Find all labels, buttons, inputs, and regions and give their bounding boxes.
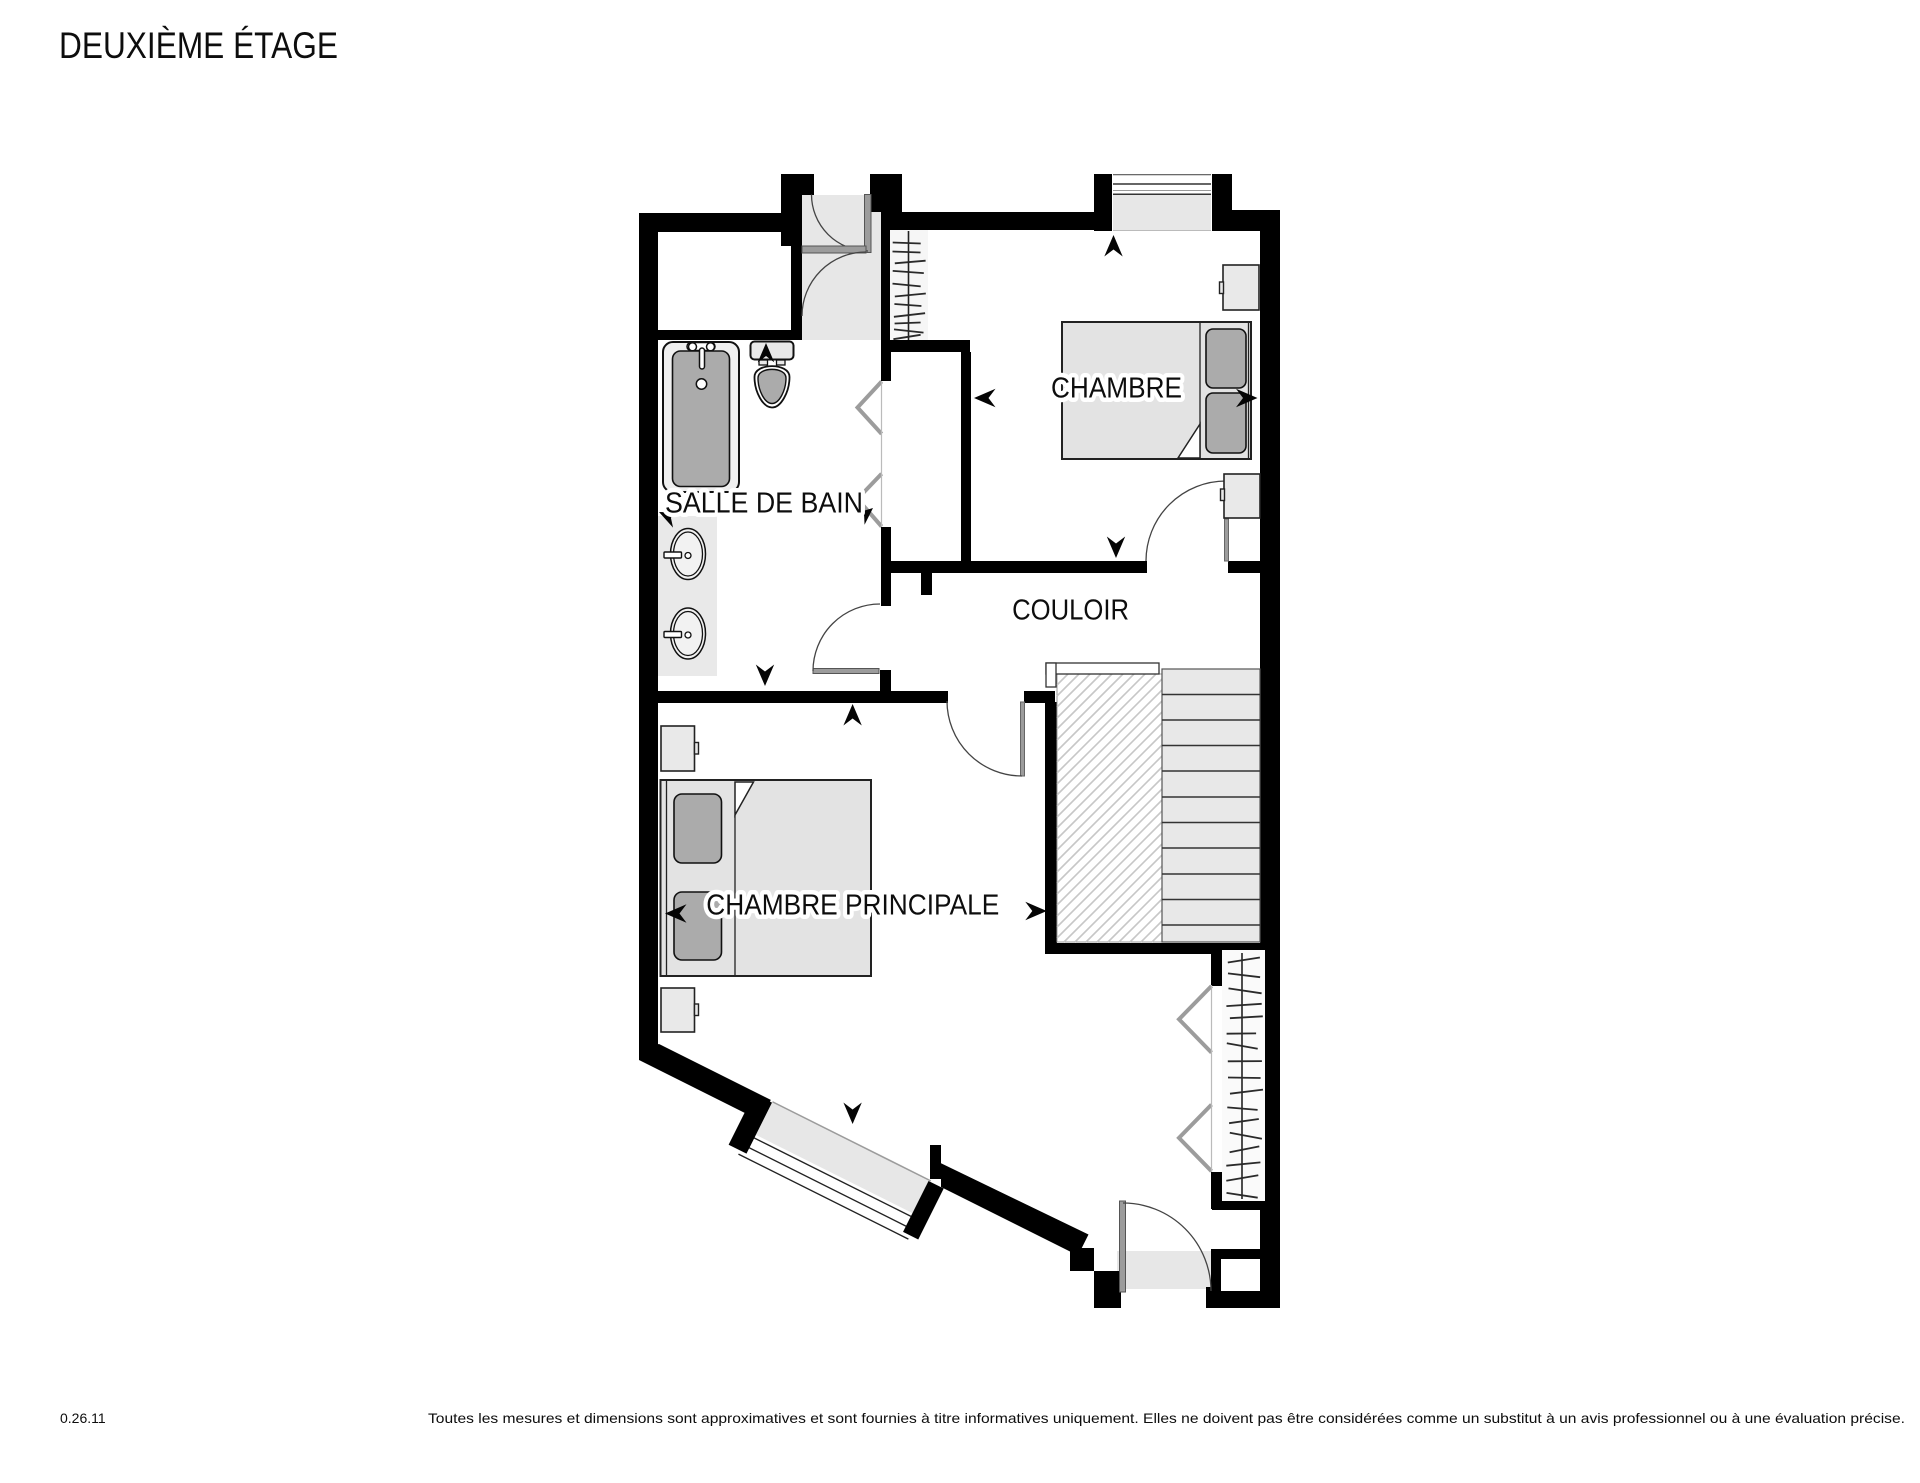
- svg-text:Toutes les mesures et dimensio: Toutes les mesures et dimensions sont ap…: [428, 1410, 1905, 1426]
- svg-text:DEUXIÈME ÉTAGE: DEUXIÈME ÉTAGE: [59, 24, 338, 66]
- svg-text:CHAMBRE PRINCIPALE: CHAMBRE PRINCIPALE: [706, 890, 999, 922]
- svg-text:CHAMBRE: CHAMBRE: [1051, 373, 1182, 405]
- svg-text:0.26.11: 0.26.11: [60, 1410, 106, 1426]
- svg-text:COULOIR: COULOIR: [1012, 595, 1129, 627]
- svg-text:SALLE DE BAIN: SALLE DE BAIN: [665, 488, 863, 520]
